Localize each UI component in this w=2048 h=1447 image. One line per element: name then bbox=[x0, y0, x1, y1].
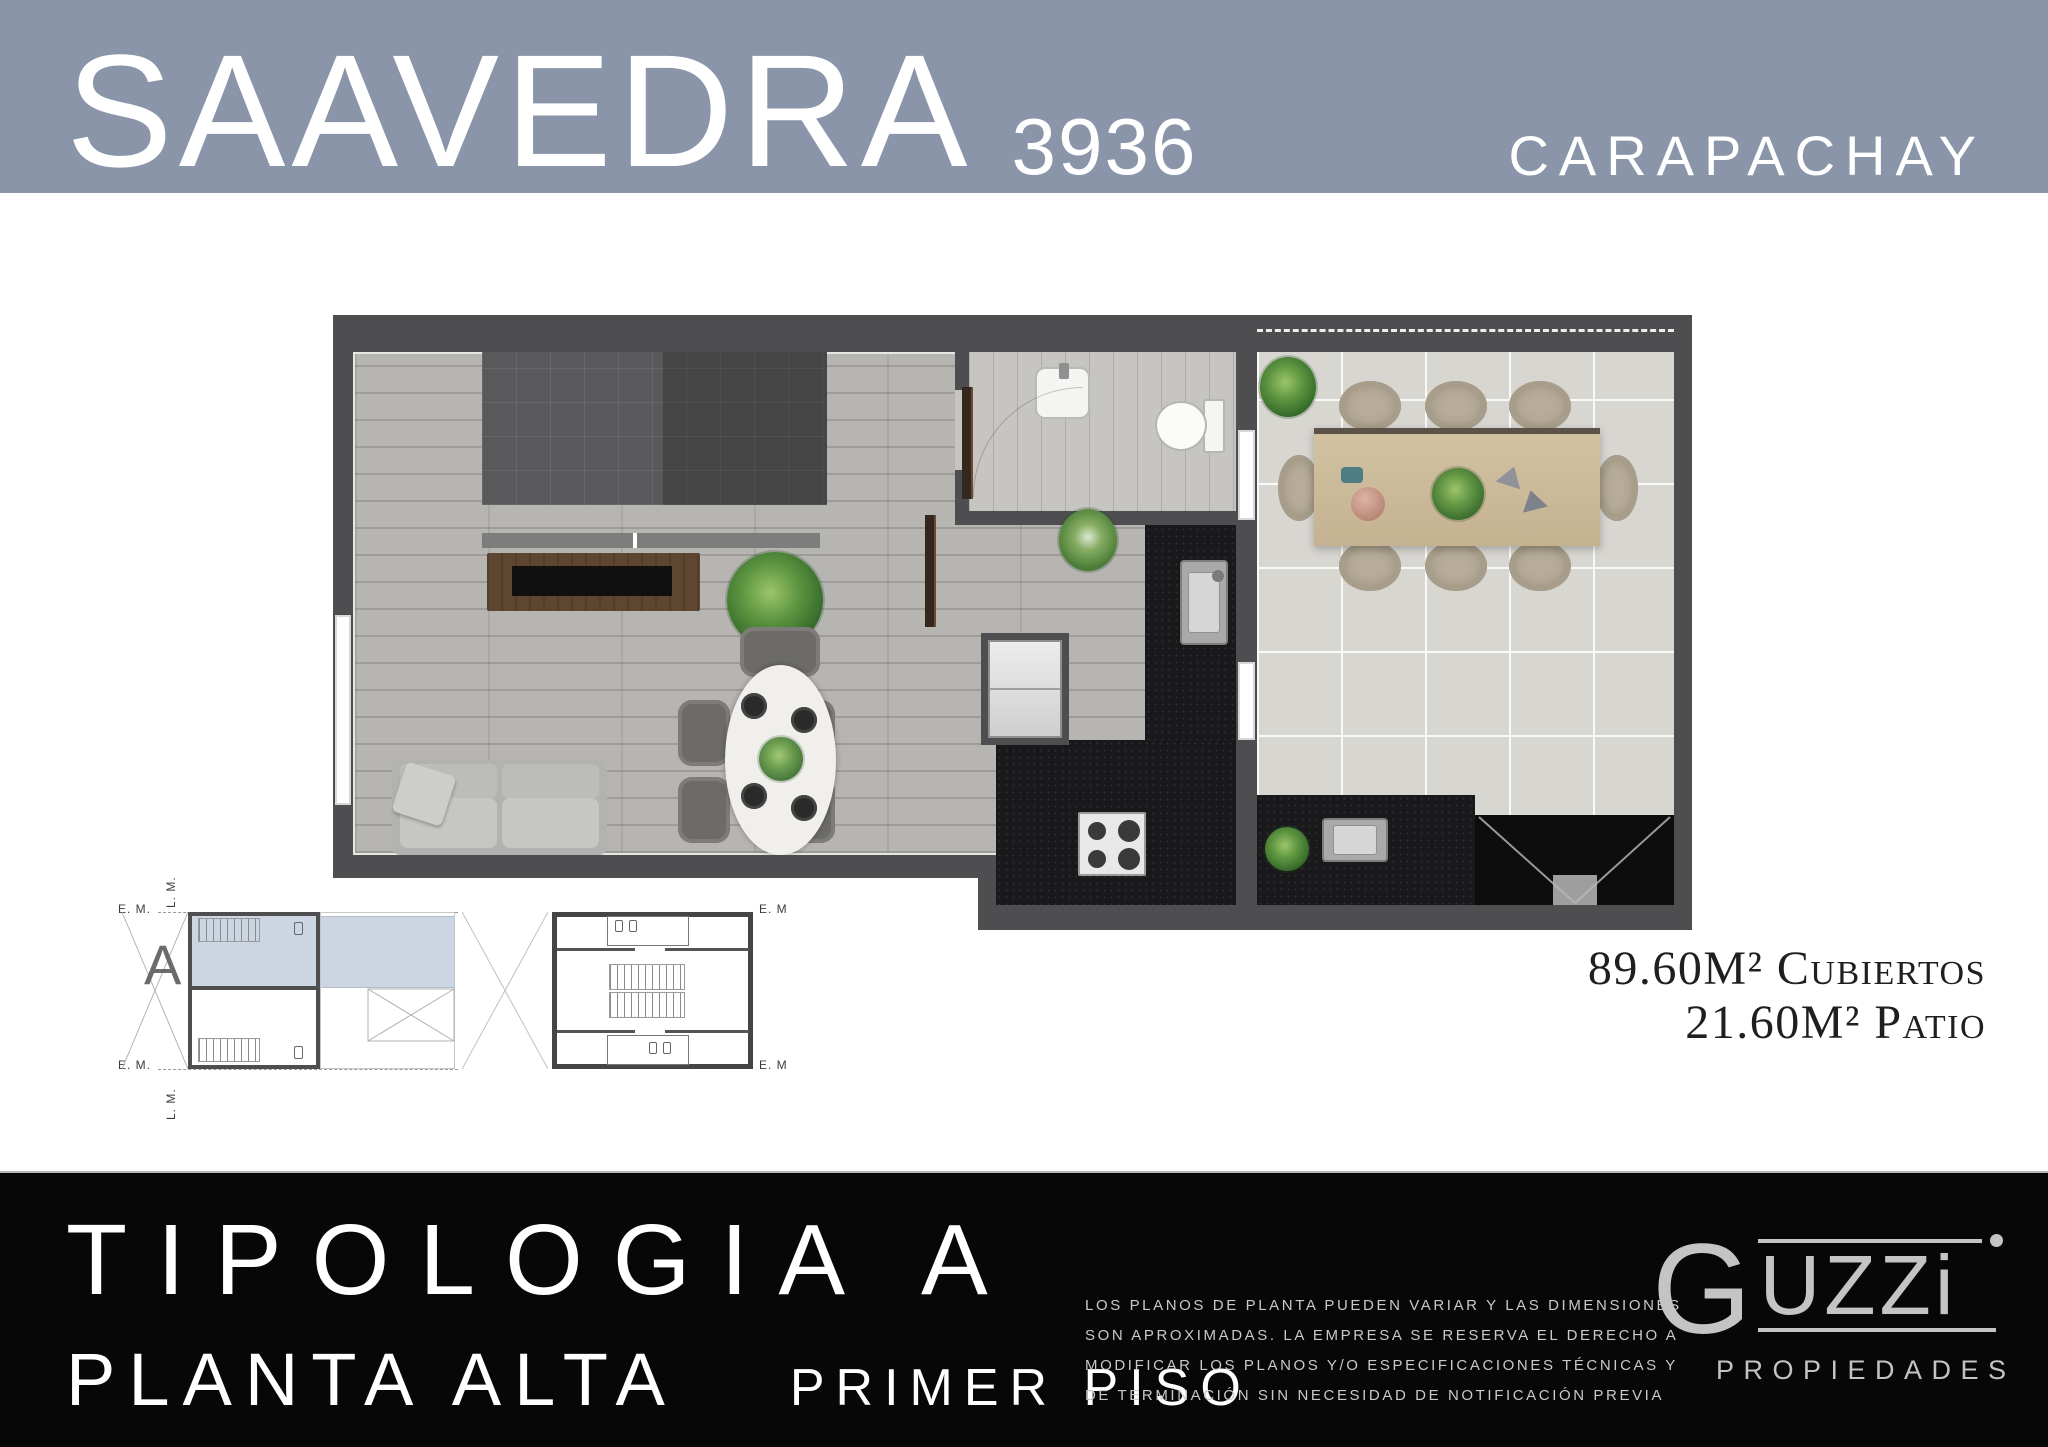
disclaimer-line: SON APROXIMADAS. LA EMPRESA SE RESERVA E… bbox=[1085, 1321, 1682, 1351]
footer-band: TIPOLOGIAA PLANTA ALTA PRIMER PISO LOS P… bbox=[0, 1173, 2048, 1447]
disclaimer-line: DE TERMINACIÓN SIN NECESIDAD DE NOTIFICA… bbox=[1085, 1381, 1682, 1411]
central-stairs-icon bbox=[609, 964, 685, 990]
header-band: SAAVEDRA 3936 CARAPACHAY bbox=[0, 0, 2048, 193]
fridge bbox=[988, 640, 1062, 738]
floor-plan bbox=[333, 315, 1692, 935]
dining-table bbox=[725, 665, 836, 855]
patio-area-label: Patio bbox=[1874, 996, 1986, 1049]
bathroom-door-leaf bbox=[962, 387, 973, 499]
wall-bottom-living bbox=[333, 855, 996, 878]
guzzi-logo-row: G UZZi bbox=[1652, 1235, 2016, 1345]
wall-divider-patio bbox=[1236, 315, 1257, 905]
floor-labels-row: PLANTA ALTA PRIMER PISO bbox=[66, 1337, 1252, 1422]
floor-label: PLANTA ALTA bbox=[66, 1337, 678, 1422]
internal-wall bbox=[665, 1030, 749, 1033]
patio-table-vase-icon bbox=[1351, 487, 1385, 521]
plate-icon bbox=[741, 783, 767, 809]
divider-window-lower bbox=[1238, 662, 1255, 740]
patio-table-decor-icon bbox=[1518, 487, 1548, 513]
patio-table-plant-icon bbox=[1432, 468, 1484, 520]
dining-chair-left-2 bbox=[678, 777, 730, 843]
kitchen-faucet-icon bbox=[1212, 570, 1224, 582]
disclaimer-line: MODIFICAR LOS PLANOS Y/O ESPECIFICACIONE… bbox=[1085, 1351, 1682, 1381]
fixture-icon bbox=[649, 1042, 657, 1054]
site-schematic-left: E. M. L. M. E. M. L. M. A bbox=[118, 886, 468, 1100]
fixture-icon bbox=[615, 920, 623, 932]
wall-top bbox=[333, 315, 1692, 352]
typology-title: TIPOLOGIAA bbox=[66, 1203, 1018, 1318]
internal-wall bbox=[557, 948, 635, 951]
table-centerpiece-icon bbox=[759, 737, 803, 781]
typology-letter: A bbox=[921, 1204, 1018, 1316]
lm-label-top: L. M. bbox=[164, 876, 178, 908]
property-line-bottom bbox=[158, 1069, 458, 1070]
central-stairs-icon bbox=[609, 992, 685, 1018]
patio-chair-bottom-1 bbox=[1339, 541, 1401, 591]
burner-icon bbox=[1088, 850, 1106, 868]
stove bbox=[1078, 812, 1146, 876]
patio-chair-right bbox=[1596, 455, 1638, 521]
patio-area-value: 21.60M² bbox=[1685, 996, 1861, 1049]
skylight-x-icon bbox=[367, 988, 455, 1042]
patio-table-decor-icon bbox=[1496, 462, 1527, 489]
guzzi-logo-uzzi: UZZi bbox=[1758, 1243, 1996, 1328]
hall-plant-icon bbox=[1059, 509, 1117, 571]
area-figures: 89.60M² Cubiertos 21.60M² Patio bbox=[1588, 942, 1986, 1050]
guzzi-logo-g: G bbox=[1652, 1235, 1752, 1345]
fixture-icon bbox=[294, 922, 303, 935]
sofa bbox=[392, 760, 607, 855]
mid-party-wall bbox=[192, 986, 316, 990]
grill-x-lines bbox=[1475, 815, 1674, 905]
grill-box bbox=[1475, 815, 1674, 905]
disclaimer-text: LOS PLANOS DE PLANTA PUEDEN VARIAR Y LAS… bbox=[1085, 1291, 1682, 1411]
patio-counter-plant-icon bbox=[1265, 827, 1309, 871]
patio-chair-top-1 bbox=[1339, 381, 1401, 431]
hall-door-leaf bbox=[925, 515, 936, 627]
plate-icon bbox=[741, 693, 767, 719]
brand-logo: SAAVEDRA bbox=[66, 35, 974, 187]
patio-table bbox=[1314, 428, 1600, 546]
fixture-icon bbox=[294, 1046, 303, 1059]
em-label-right-top: E. M bbox=[759, 902, 788, 916]
wall-right bbox=[1674, 315, 1692, 930]
sofa-seat-right bbox=[502, 798, 599, 848]
patio-corner-plant-icon bbox=[1260, 357, 1316, 417]
site-schematic-right: E. M E. M bbox=[545, 886, 785, 1100]
covered-area-line: 89.60M² Cubiertos bbox=[1588, 942, 1986, 996]
internal-wall bbox=[665, 948, 749, 951]
plate-icon bbox=[791, 795, 817, 821]
patio-chair-bottom-2 bbox=[1425, 541, 1487, 591]
dining-chair-left-1 bbox=[678, 700, 730, 766]
fridge-divider-line bbox=[990, 688, 1060, 690]
patio-chair-bottom-3 bbox=[1509, 541, 1571, 591]
typology-title-text: TIPOLOGIA bbox=[66, 1204, 875, 1316]
kitchen-sink bbox=[1180, 560, 1228, 645]
patio-chair-top-2 bbox=[1425, 381, 1487, 431]
internal-wall bbox=[557, 1030, 635, 1033]
stairs-upper-icon bbox=[198, 918, 260, 942]
toilet-bowl bbox=[1155, 401, 1207, 451]
patio-table-cups-icon bbox=[1341, 467, 1363, 483]
console-shelf bbox=[482, 533, 820, 548]
disclaimer-line: LOS PLANOS DE PLANTA PUEDEN VARIAR Y LAS… bbox=[1085, 1291, 1682, 1321]
lm-label-bottom: L. M. bbox=[164, 1088, 178, 1120]
burner-icon bbox=[1088, 822, 1106, 840]
burner-icon bbox=[1118, 848, 1140, 870]
em-label-right-bottom: E. M bbox=[759, 1058, 788, 1072]
stairs-lower-icon bbox=[198, 1038, 260, 1062]
guzzi-logo-subtitle: PROPIEDADES bbox=[1716, 1355, 2016, 1386]
divider-window-upper bbox=[1238, 430, 1255, 520]
covered-area-label: Cubiertos bbox=[1777, 942, 1986, 995]
plate-icon bbox=[791, 707, 817, 733]
void-x-between bbox=[462, 912, 548, 1069]
patio-sink-basin bbox=[1333, 825, 1378, 855]
guzzi-logo-stack: UZZi bbox=[1758, 1239, 1996, 1332]
unit-letter: A bbox=[144, 932, 181, 997]
fixture-icon bbox=[629, 920, 637, 932]
closet-tile-zone-dark-half bbox=[663, 352, 827, 505]
patio-sink bbox=[1322, 818, 1388, 862]
tv-screen bbox=[512, 566, 672, 596]
covered-area-value: 89.60M² bbox=[1588, 942, 1764, 995]
bathroom-faucet-icon bbox=[1059, 363, 1069, 379]
living-window bbox=[335, 615, 351, 805]
location-name: CARAPACHAY bbox=[1508, 125, 1986, 187]
street-number: 3936 bbox=[1012, 107, 1198, 187]
patio-area-line: 21.60M² Patio bbox=[1588, 996, 1986, 1050]
guzzi-logo-dot-icon bbox=[1990, 1234, 2003, 1247]
bath-block-bottom bbox=[607, 1035, 689, 1065]
sofa-back-right bbox=[502, 764, 599, 798]
wall-bottom-kitchen-patio bbox=[988, 905, 1692, 930]
patio-chair-top-3 bbox=[1509, 381, 1571, 431]
fixture-icon bbox=[663, 1042, 671, 1054]
toilet bbox=[1155, 395, 1227, 457]
guzzi-logo: G UZZi PROPIEDADES bbox=[1652, 1235, 2016, 1386]
console-shelf-gap bbox=[633, 533, 637, 548]
patio-axis-dash-line bbox=[1257, 329, 1674, 332]
burner-icon bbox=[1118, 820, 1140, 842]
